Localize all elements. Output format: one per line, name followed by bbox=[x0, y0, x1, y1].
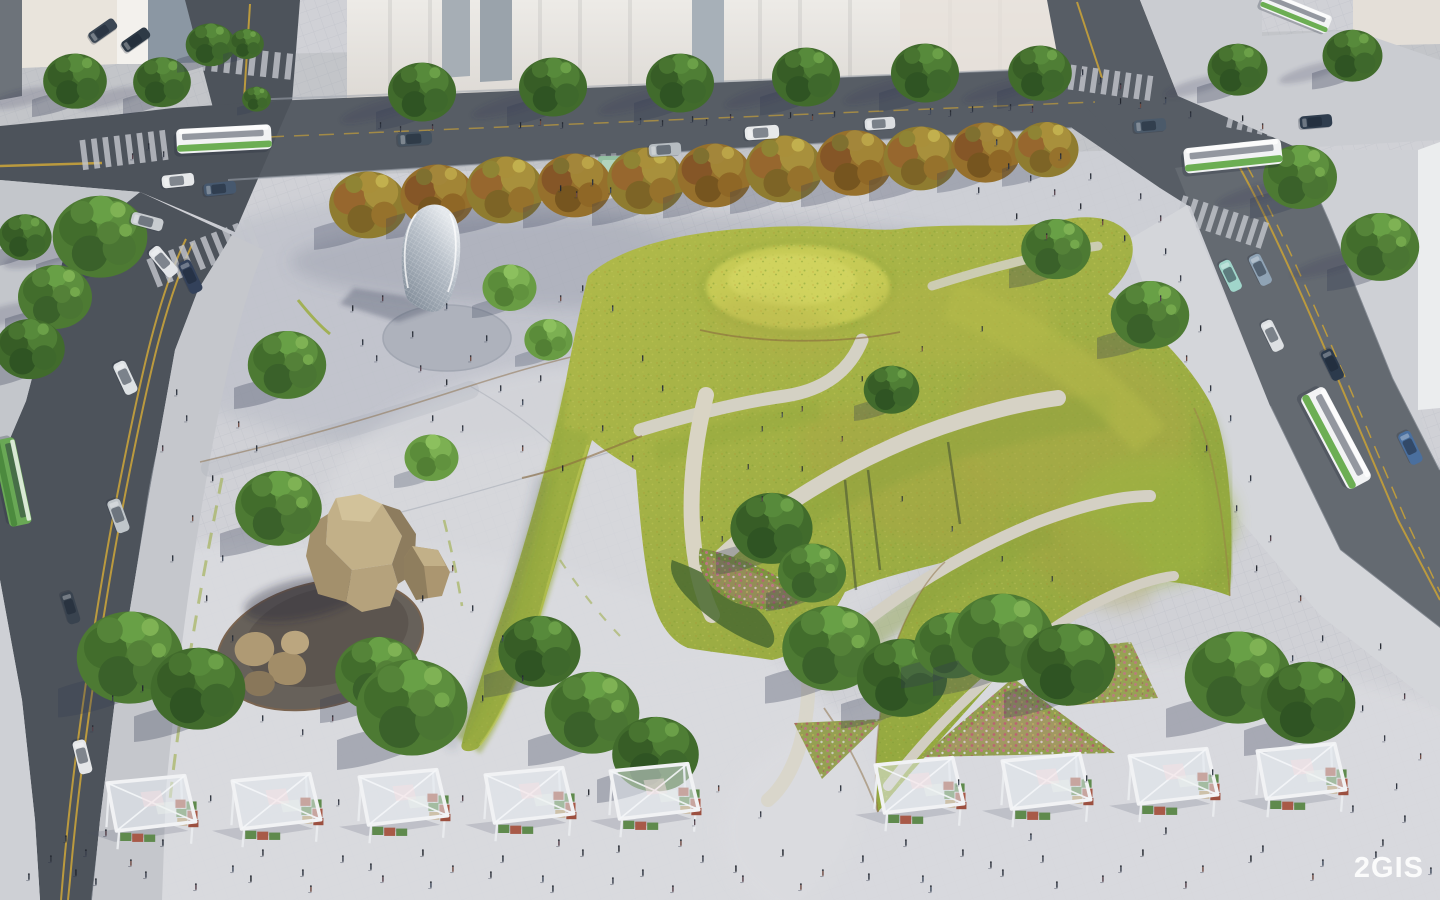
svg-text:2GIS: 2GIS bbox=[1354, 852, 1424, 884]
